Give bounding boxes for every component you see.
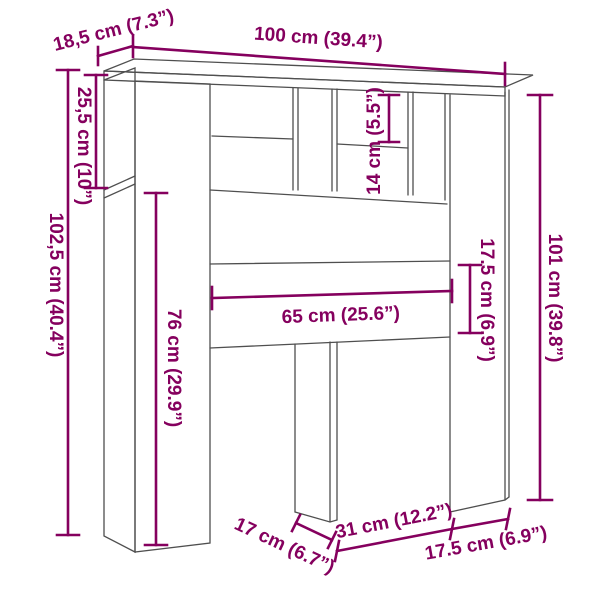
left-pillar-side-face — [104, 68, 135, 552]
dim-label-leg-depth: 17 cm (6.7”) — [231, 514, 338, 579]
dim-label-width: 100 cm (39.4”) — [253, 24, 383, 54]
dim-label-side-opening-height: 25,5 cm (10”) — [73, 87, 94, 205]
dim-label-panel-height: 17.5 cm (6.9”) — [476, 238, 497, 362]
right-pillar-bottom — [450, 497, 509, 512]
dim-label-right-panel-width: 17.5 cm (6.9”) — [423, 523, 548, 565]
left-side-shelf-edge — [104, 176, 135, 190]
dimension-diagram: 18,5 cm (7.3”) 100 cm (39.4”) 25,5 cm (1… — [0, 0, 600, 600]
dim-right-panel-width — [452, 509, 510, 529]
compartment-row-bottom — [210, 190, 447, 204]
diagram-canvas: 18,5 cm (7.3”) 100 cm (39.4”) 25,5 cm (1… — [0, 0, 600, 600]
dim-label-right-height: 101 cm (39.8”) — [544, 234, 565, 363]
dim-label-left-panel-height: 76 cm (29.9”) — [163, 309, 184, 427]
mid-leg-bottom — [295, 512, 337, 522]
left-side-shelf-bottom — [104, 184, 135, 198]
dim-label-inner-width: 65 cm (25.6”) — [281, 303, 400, 328]
shelf-left-compartment — [212, 136, 293, 139]
panel-seam — [210, 261, 450, 264]
dim-label-leg-spacing: 31 cm (12.2”) — [334, 500, 454, 543]
dim-label-shelf-opening-height: 14 cm (5.5”) — [364, 87, 385, 195]
dim-label-total-height: 102,5 cm (40.4”) — [45, 213, 66, 358]
top-board-front-face — [104, 71, 505, 96]
